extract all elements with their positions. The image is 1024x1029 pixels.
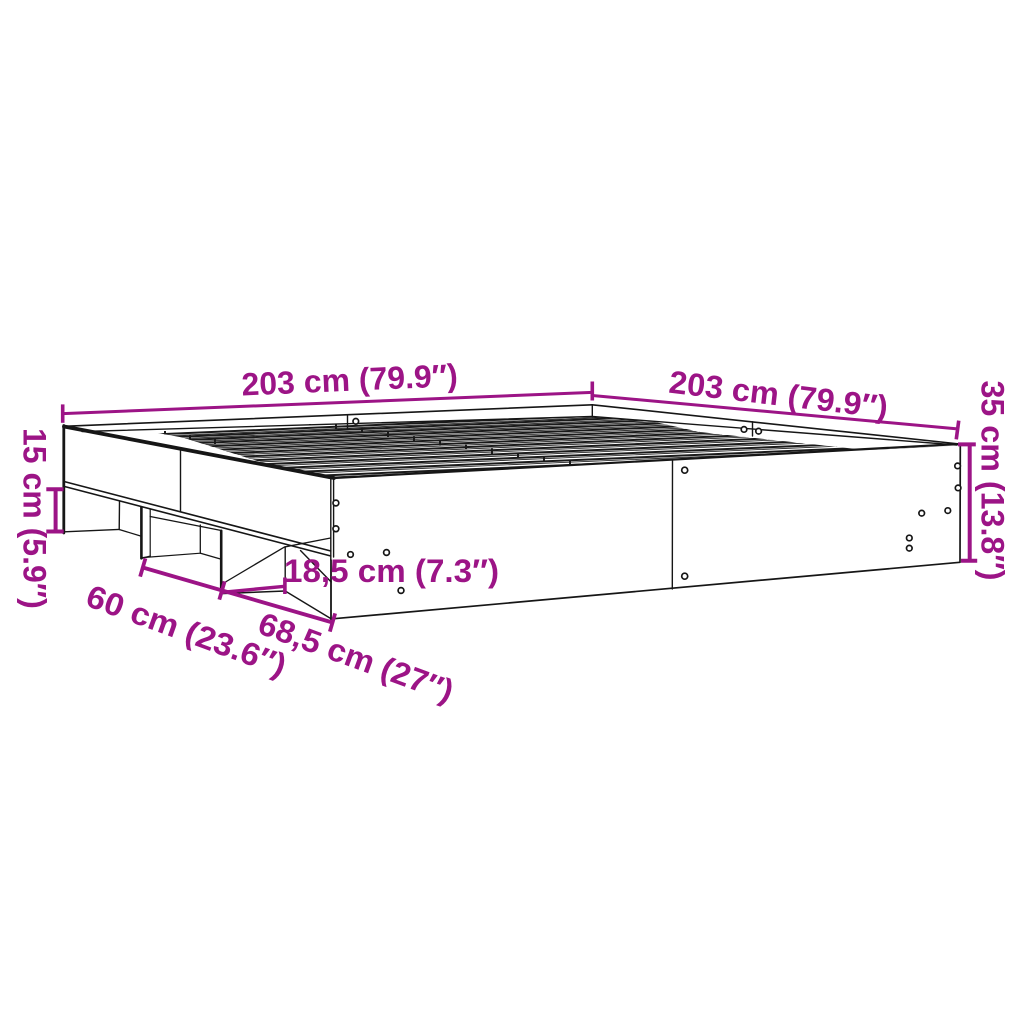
svg-text:35 cm (13.8″): 35 cm (13.8″) (975, 381, 1011, 581)
svg-text:15 cm (5.9″): 15 cm (5.9″) (17, 428, 53, 609)
svg-text:18,5 cm (7.3″): 18,5 cm (7.3″) (284, 553, 499, 589)
